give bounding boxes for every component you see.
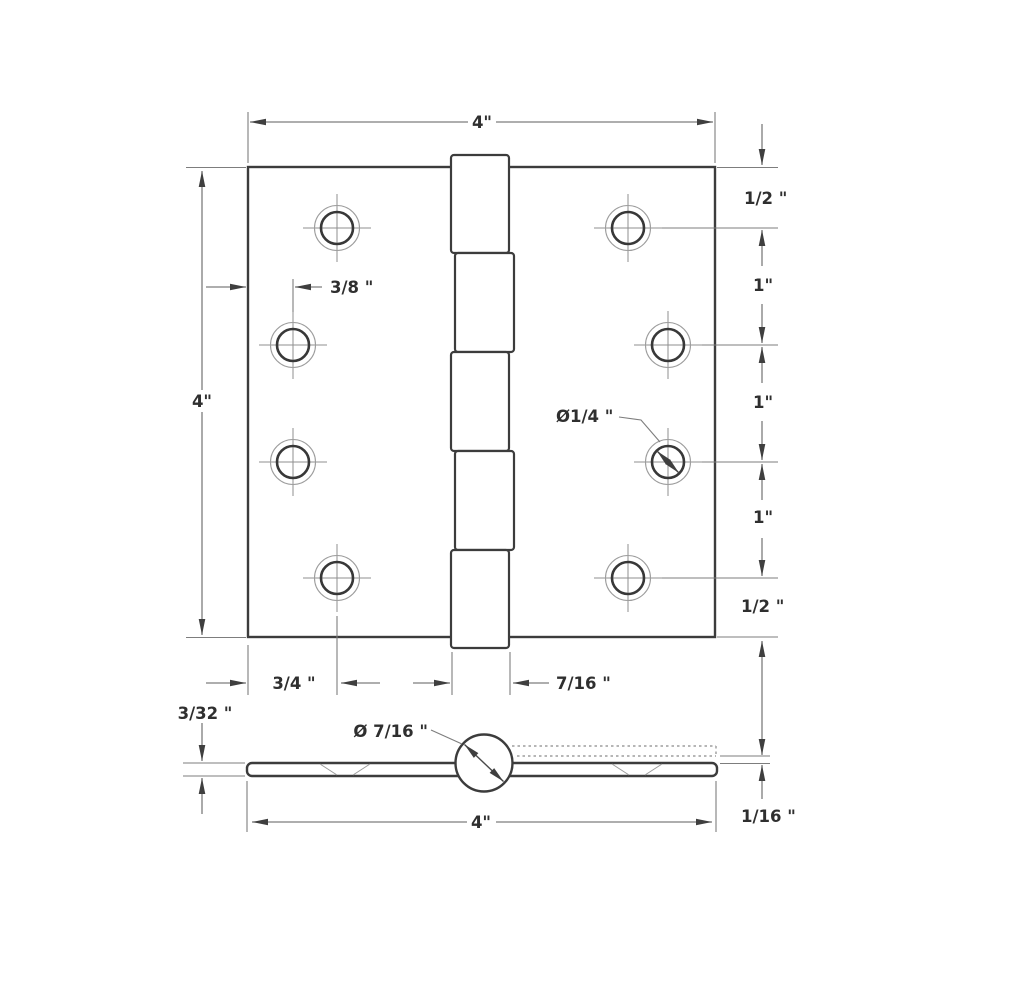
edge-to-hole-label: 3/4 " (272, 674, 315, 693)
knuckle-segment-4 (455, 451, 514, 550)
leaf-gap-label: 1/16 " (741, 807, 796, 826)
dim-leaf-gap: 1/16 " (720, 756, 796, 826)
dim-knuckle-width: 7/16 " (413, 652, 611, 695)
dim-leaf-thickness: 3/32 " (178, 704, 245, 814)
hole-diameter-label: Ø1/4 " (556, 407, 613, 426)
barrel-diameter-label: Ø 7/16 " (353, 722, 428, 741)
hidden-leaf-lines (512, 746, 716, 756)
hinge-dimension-drawing: 4" 4" 3/8 " Ø1/4 " (0, 0, 1019, 1000)
knuckle-segment-2 (455, 253, 514, 352)
knuckle-segment-1 (451, 155, 509, 253)
side-view: Ø 7/16 " 3/32 " 1/16 " 4" (178, 704, 796, 832)
spacing-1-label: 1" (753, 276, 773, 295)
hole-offset-label: 3/8 " (330, 278, 373, 297)
knuckle-segment-3 (451, 352, 509, 451)
left-height-label: 4" (192, 392, 212, 411)
spacing-top-label: 1/2 " (744, 189, 787, 208)
knuckle-barrel (451, 155, 514, 648)
top-width-label: 4" (472, 113, 492, 132)
knuckle-width-label: 7/16 " (556, 674, 611, 693)
top-view: 4" 4" 3/8 " Ø1/4 " (186, 112, 787, 799)
dim-left-height: 4" (186, 168, 246, 638)
leaf-thickness-label: 3/32 " (178, 704, 233, 723)
spacing-3-label: 1" (753, 508, 773, 527)
side-width-label: 4" (471, 813, 491, 832)
spacing-bottom-label: 1/2 " (741, 597, 784, 616)
spacing-2-label: 1" (753, 393, 773, 412)
knuckle-segment-5 (451, 550, 509, 648)
